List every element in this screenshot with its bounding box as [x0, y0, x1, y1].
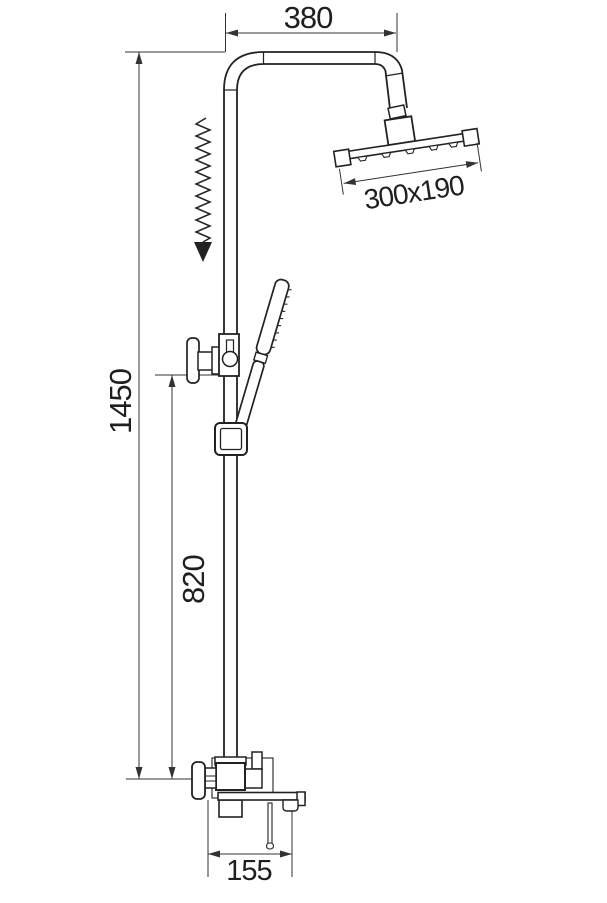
dim-total-height: 1450 [103, 52, 225, 779]
arrowhead-down [169, 767, 176, 779]
arrowhead-right [466, 159, 479, 168]
mixer-valve [192, 752, 305, 849]
dim-label-slider-height: 820 [176, 555, 211, 604]
dim-ext-line [339, 169, 343, 195]
wall-bracket [187, 338, 199, 383]
dim-label-top-width: 380 [284, 0, 333, 35]
bracket-connector [198, 352, 213, 370]
head-mount-block [385, 116, 415, 145]
arrowhead-right [384, 30, 396, 37]
hand-shower-holder [215, 423, 247, 455]
pull-rod-tip [267, 843, 274, 849]
dim-label-total-height: 1450 [103, 368, 138, 434]
dim-label-spout-width: 155 [226, 855, 271, 887]
arrowhead-down [136, 767, 143, 779]
mixer-body [216, 763, 245, 790]
nozzle [449, 142, 459, 147]
spout-outlet [283, 800, 298, 811]
pull-rod [268, 803, 272, 844]
height-adjust-arrow [194, 118, 212, 262]
zigzag-line [196, 118, 210, 242]
shower-set-dimension-drawing: 380 1450 820 155 [0, 0, 607, 903]
slider-knob [223, 352, 238, 367]
arrowhead-right [280, 851, 292, 858]
pipe-inner-edge [237, 64, 390, 760]
nozzle [405, 149, 415, 154]
mixer-handle [192, 762, 205, 799]
diverter-knob [252, 752, 262, 769]
arrowhead-left [343, 178, 356, 187]
mixer-lower-body [219, 800, 242, 817]
dim-slider-height: 820 [155, 375, 219, 779]
technical-drawing: 380 1450 820 155 [0, 0, 607, 903]
diverter-housing [245, 769, 262, 788]
arrowhead-left [208, 851, 220, 858]
arrowhead-up [169, 375, 176, 387]
hand-shower-head [255, 278, 290, 356]
arrowhead-left [226, 30, 238, 37]
holder-inner [221, 429, 242, 450]
rain-shower-head: 300x190 [330, 107, 487, 219]
arrowhead-up [136, 52, 143, 64]
down-arrowhead [194, 242, 212, 262]
nozzle [382, 152, 392, 157]
dim-top-width: 380 [226, 0, 398, 52]
bath-spout [218, 793, 305, 801]
slider-bracket [187, 334, 239, 383]
dim-ext-line [477, 143, 481, 172]
handle-adapter [205, 768, 216, 788]
dimension-lines: 380 1450 820 155 [103, 0, 397, 887]
head-end-cap-left [334, 149, 351, 167]
nozzle [429, 145, 439, 150]
arm-joint-tick [385, 73, 403, 76]
dim-label-head-size: 300x190 [362, 169, 466, 215]
nozzle [358, 156, 368, 161]
